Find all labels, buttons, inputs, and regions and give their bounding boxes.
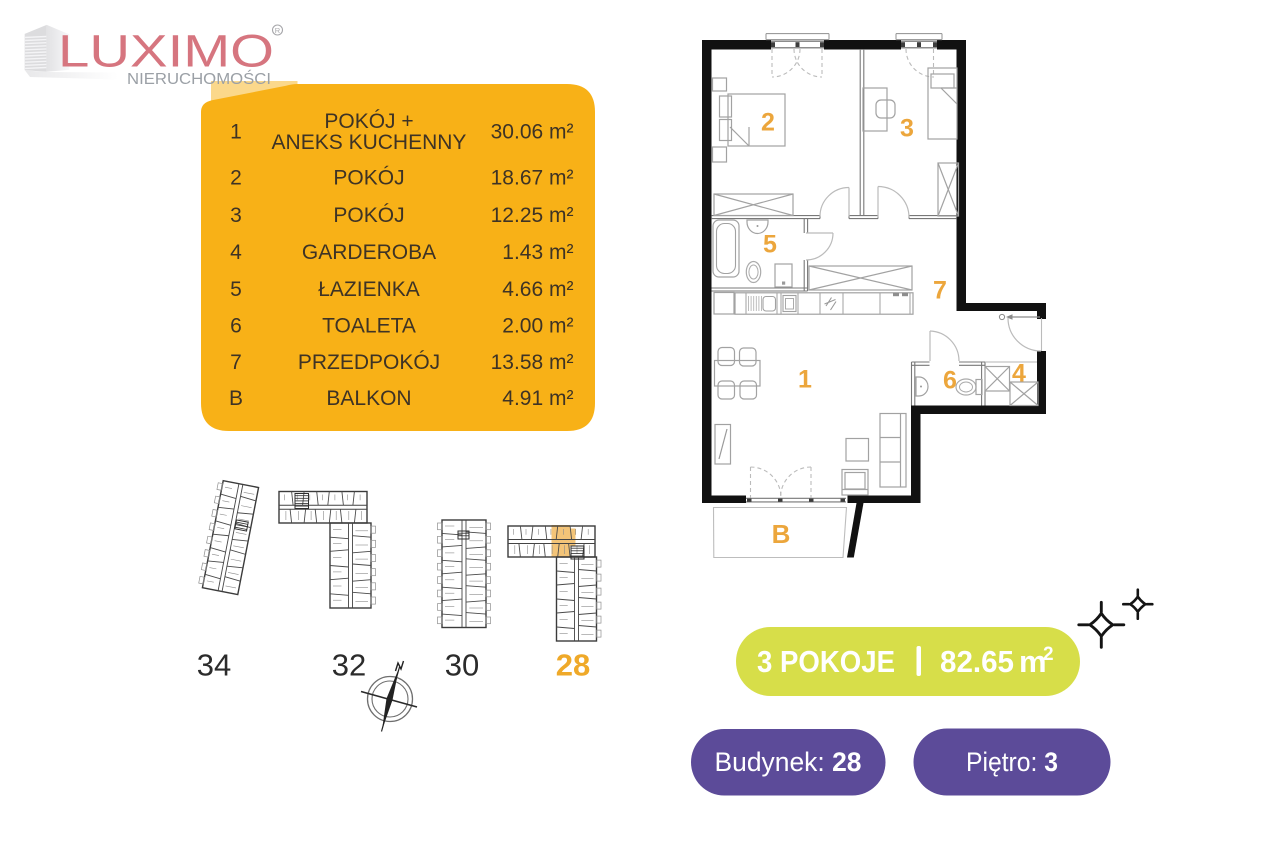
svg-text:PRZEDPOKÓJ: PRZEDPOKÓJ bbox=[298, 351, 440, 374]
svg-text:R: R bbox=[275, 26, 281, 35]
svg-text:34: 34 bbox=[197, 648, 231, 683]
svg-text:1: 1 bbox=[798, 366, 812, 394]
svg-text:ANEKS KUCHENNY: ANEKS KUCHENNY bbox=[272, 131, 467, 154]
svg-text:5: 5 bbox=[763, 231, 777, 259]
svg-text:6: 6 bbox=[230, 315, 242, 338]
svg-text:4.91 m²: 4.91 m² bbox=[502, 387, 573, 410]
svg-text:7: 7 bbox=[933, 277, 947, 305]
svg-text:Piętro: 3: Piętro: 3 bbox=[966, 747, 1058, 777]
svg-text:3: 3 bbox=[230, 204, 242, 227]
svg-text:1.43 m²: 1.43 m² bbox=[502, 241, 573, 264]
svg-text:POKÓJ: POKÓJ bbox=[333, 204, 404, 227]
svg-text:4.66 m²: 4.66 m² bbox=[502, 278, 573, 301]
svg-text:TOALETA: TOALETA bbox=[322, 315, 416, 338]
svg-text:32: 32 bbox=[332, 648, 366, 683]
svg-text:6: 6 bbox=[943, 367, 957, 395]
svg-text:NIERUCHOMOŚCI: NIERUCHOMOŚCI bbox=[127, 69, 271, 88]
svg-text:2: 2 bbox=[230, 167, 242, 190]
svg-text:BALKON: BALKON bbox=[326, 387, 411, 410]
svg-text:GARDEROBA: GARDEROBA bbox=[302, 241, 436, 264]
svg-text:2: 2 bbox=[1043, 644, 1054, 665]
svg-text:POKÓJ +: POKÓJ + bbox=[324, 110, 413, 133]
svg-text:2.00 m²: 2.00 m² bbox=[502, 315, 573, 338]
svg-text:LUXIMO: LUXIMO bbox=[58, 26, 274, 77]
svg-text:13.58 m²: 13.58 m² bbox=[491, 351, 574, 374]
svg-text:3 POKOJE: 3 POKOJE bbox=[757, 644, 895, 679]
svg-text:B: B bbox=[772, 519, 791, 549]
svg-text:7: 7 bbox=[230, 351, 242, 374]
svg-text:POKÓJ: POKÓJ bbox=[333, 167, 404, 190]
svg-text:B: B bbox=[229, 387, 243, 410]
svg-text:82.65: 82.65 bbox=[940, 644, 1014, 679]
svg-text:Budynek: 28: Budynek: 28 bbox=[715, 747, 862, 777]
svg-text:1: 1 bbox=[230, 121, 242, 144]
svg-text:12.25 m²: 12.25 m² bbox=[491, 204, 574, 227]
svg-text:4: 4 bbox=[230, 241, 242, 264]
svg-text:30: 30 bbox=[445, 648, 479, 683]
svg-text:2: 2 bbox=[761, 109, 775, 137]
svg-text:3: 3 bbox=[900, 115, 914, 143]
svg-text:30.06 m²: 30.06 m² bbox=[491, 121, 574, 144]
svg-text:5: 5 bbox=[230, 278, 242, 301]
svg-text:18.67 m²: 18.67 m² bbox=[491, 167, 574, 190]
svg-text:4: 4 bbox=[1012, 360, 1026, 388]
svg-text:28: 28 bbox=[556, 648, 590, 683]
svg-text:ŁAZIENKA: ŁAZIENKA bbox=[318, 278, 420, 301]
